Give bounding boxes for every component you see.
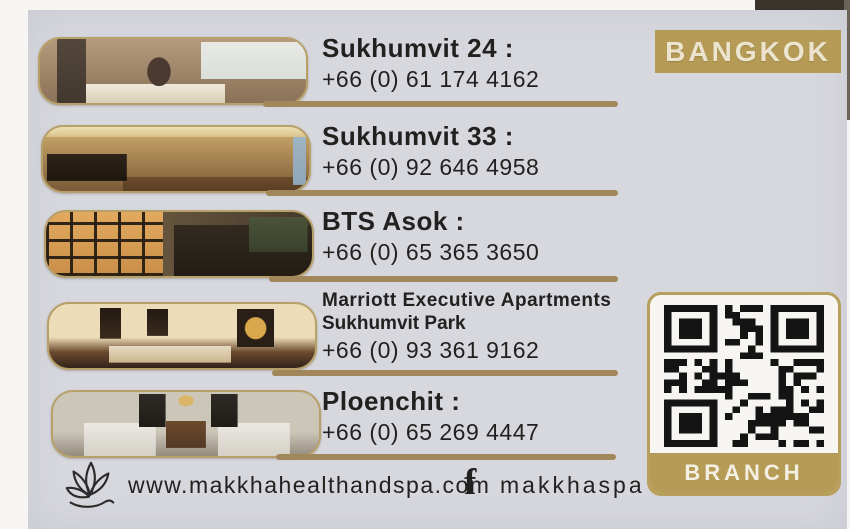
location-phone: +66 (0) 61 174 4162 <box>322 66 539 93</box>
website-url: www.makkhahealthandspa.com <box>128 472 490 499</box>
city-badge: BANGKOK <box>655 30 841 73</box>
divider-line <box>263 101 618 107</box>
location-name: Sukhumvit 33 : <box>322 121 539 151</box>
spa-photo <box>51 390 321 458</box>
spa-photo <box>47 302 317 370</box>
facebook-icon: f <box>464 461 476 504</box>
location-name-line2: Sukhumvit Park <box>322 312 611 335</box>
location-row: Sukhumvit 33 : +66 (0) 92 646 4958 <box>28 121 847 196</box>
divider-line <box>269 276 618 282</box>
location-phone: +66 (0) 65 269 4447 <box>322 419 539 446</box>
location-phone: +66 (0) 93 361 9162 <box>322 337 611 364</box>
spa-photo <box>41 125 311 193</box>
qr-code <box>664 305 824 447</box>
lotus-icon <box>58 457 122 519</box>
location-row: BTS Asok : +66 (0) 65 365 3650 <box>28 206 847 282</box>
location-phone: +66 (0) 92 646 4958 <box>322 154 539 181</box>
location-name: Ploenchit : <box>322 386 539 416</box>
spa-photo <box>44 210 314 278</box>
location-name: Sukhumvit 24 : <box>322 33 539 63</box>
location-name: Marriott Executive Apartments <box>322 289 611 312</box>
divider-line <box>266 190 618 196</box>
spa-photo <box>38 37 308 105</box>
facebook-handle: makkhaspa <box>500 472 645 499</box>
location-name: BTS Asok : <box>322 206 539 236</box>
divider-line <box>272 370 618 376</box>
business-card: Sukhumvit 24 : +66 (0) 61 174 4162 Sukhu… <box>28 10 847 529</box>
branch-label: BRANCH <box>650 453 838 493</box>
location-phone: +66 (0) 65 365 3650 <box>322 239 539 266</box>
footer: www.makkhahealthandspa.com f makkhaspa <box>28 457 678 521</box>
